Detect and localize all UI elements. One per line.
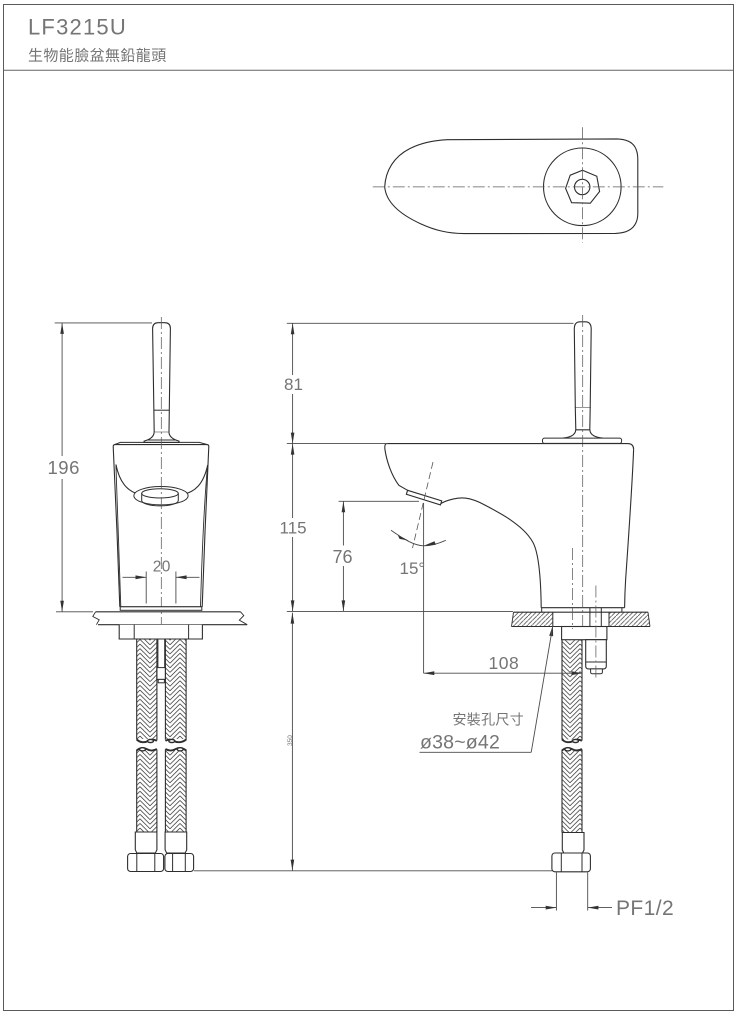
svg-text:350: 350 bbox=[287, 735, 294, 746]
svg-text:ø38~ø42: ø38~ø42 bbox=[420, 732, 500, 754]
svg-text:20: 20 bbox=[153, 559, 171, 576]
svg-text:196: 196 bbox=[48, 457, 80, 478]
svg-text:PF1/2: PF1/2 bbox=[616, 897, 674, 920]
svg-text:108: 108 bbox=[489, 653, 520, 673]
svg-text:81: 81 bbox=[284, 375, 303, 394]
svg-text:76: 76 bbox=[333, 547, 353, 567]
svg-text:生物能臉盆無鉛龍頭: 生物能臉盆無鉛龍頭 bbox=[28, 48, 167, 65]
svg-text:15°: 15° bbox=[400, 559, 426, 578]
svg-text:LF3215U: LF3215U bbox=[28, 15, 127, 40]
svg-text:安裝孔尺寸: 安裝孔尺寸 bbox=[453, 712, 525, 728]
svg-text:115: 115 bbox=[280, 519, 307, 538]
